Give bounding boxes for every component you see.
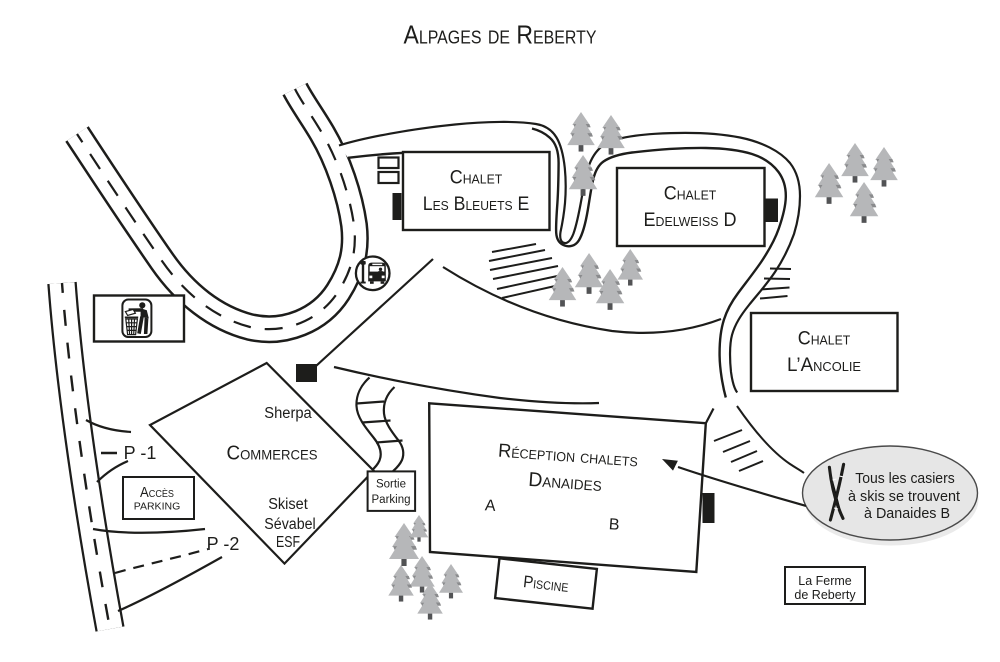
svg-text:Les Bleuets E: Les Bleuets E xyxy=(423,194,530,215)
svg-text:Alpages de Reberty: Alpages de Reberty xyxy=(404,20,597,50)
svg-text:Chalet: Chalet xyxy=(450,168,503,189)
svg-text:P -1: P -1 xyxy=(124,443,157,463)
svg-text:Edelweiss D: Edelweiss D xyxy=(644,210,737,231)
svg-text:Sévabel: Sévabel xyxy=(264,516,315,533)
svg-text:Commerces: Commerces xyxy=(227,443,318,465)
svg-text:Chalet: Chalet xyxy=(798,329,851,350)
svg-text:ESF: ESF xyxy=(276,534,300,551)
svg-text:L’Ancolie: L’Ancolie xyxy=(787,355,861,376)
svg-text:Parking: Parking xyxy=(372,494,411,506)
svg-text:La Ferme: La Ferme xyxy=(798,574,852,588)
svg-text:Sherpa: Sherpa xyxy=(264,405,312,422)
svg-text:de Reberty: de Reberty xyxy=(794,588,856,602)
svg-text:A: A xyxy=(484,497,496,515)
svg-text:Accès: Accès xyxy=(140,485,174,501)
svg-text:Sortie: Sortie xyxy=(376,479,406,491)
svg-text:Skiset: Skiset xyxy=(268,496,308,513)
svg-text:à Danaides B: à Danaides B xyxy=(864,505,950,522)
svg-text:Tous les casiers: Tous les casiers xyxy=(855,470,955,487)
svg-text:PARKING: PARKING xyxy=(134,501,180,513)
svg-text:P -2: P -2 xyxy=(207,534,240,554)
svg-text:à skis se trouvent: à skis se trouvent xyxy=(848,488,961,505)
svg-text:Chalet: Chalet xyxy=(664,184,717,205)
svg-text:B: B xyxy=(608,516,620,534)
